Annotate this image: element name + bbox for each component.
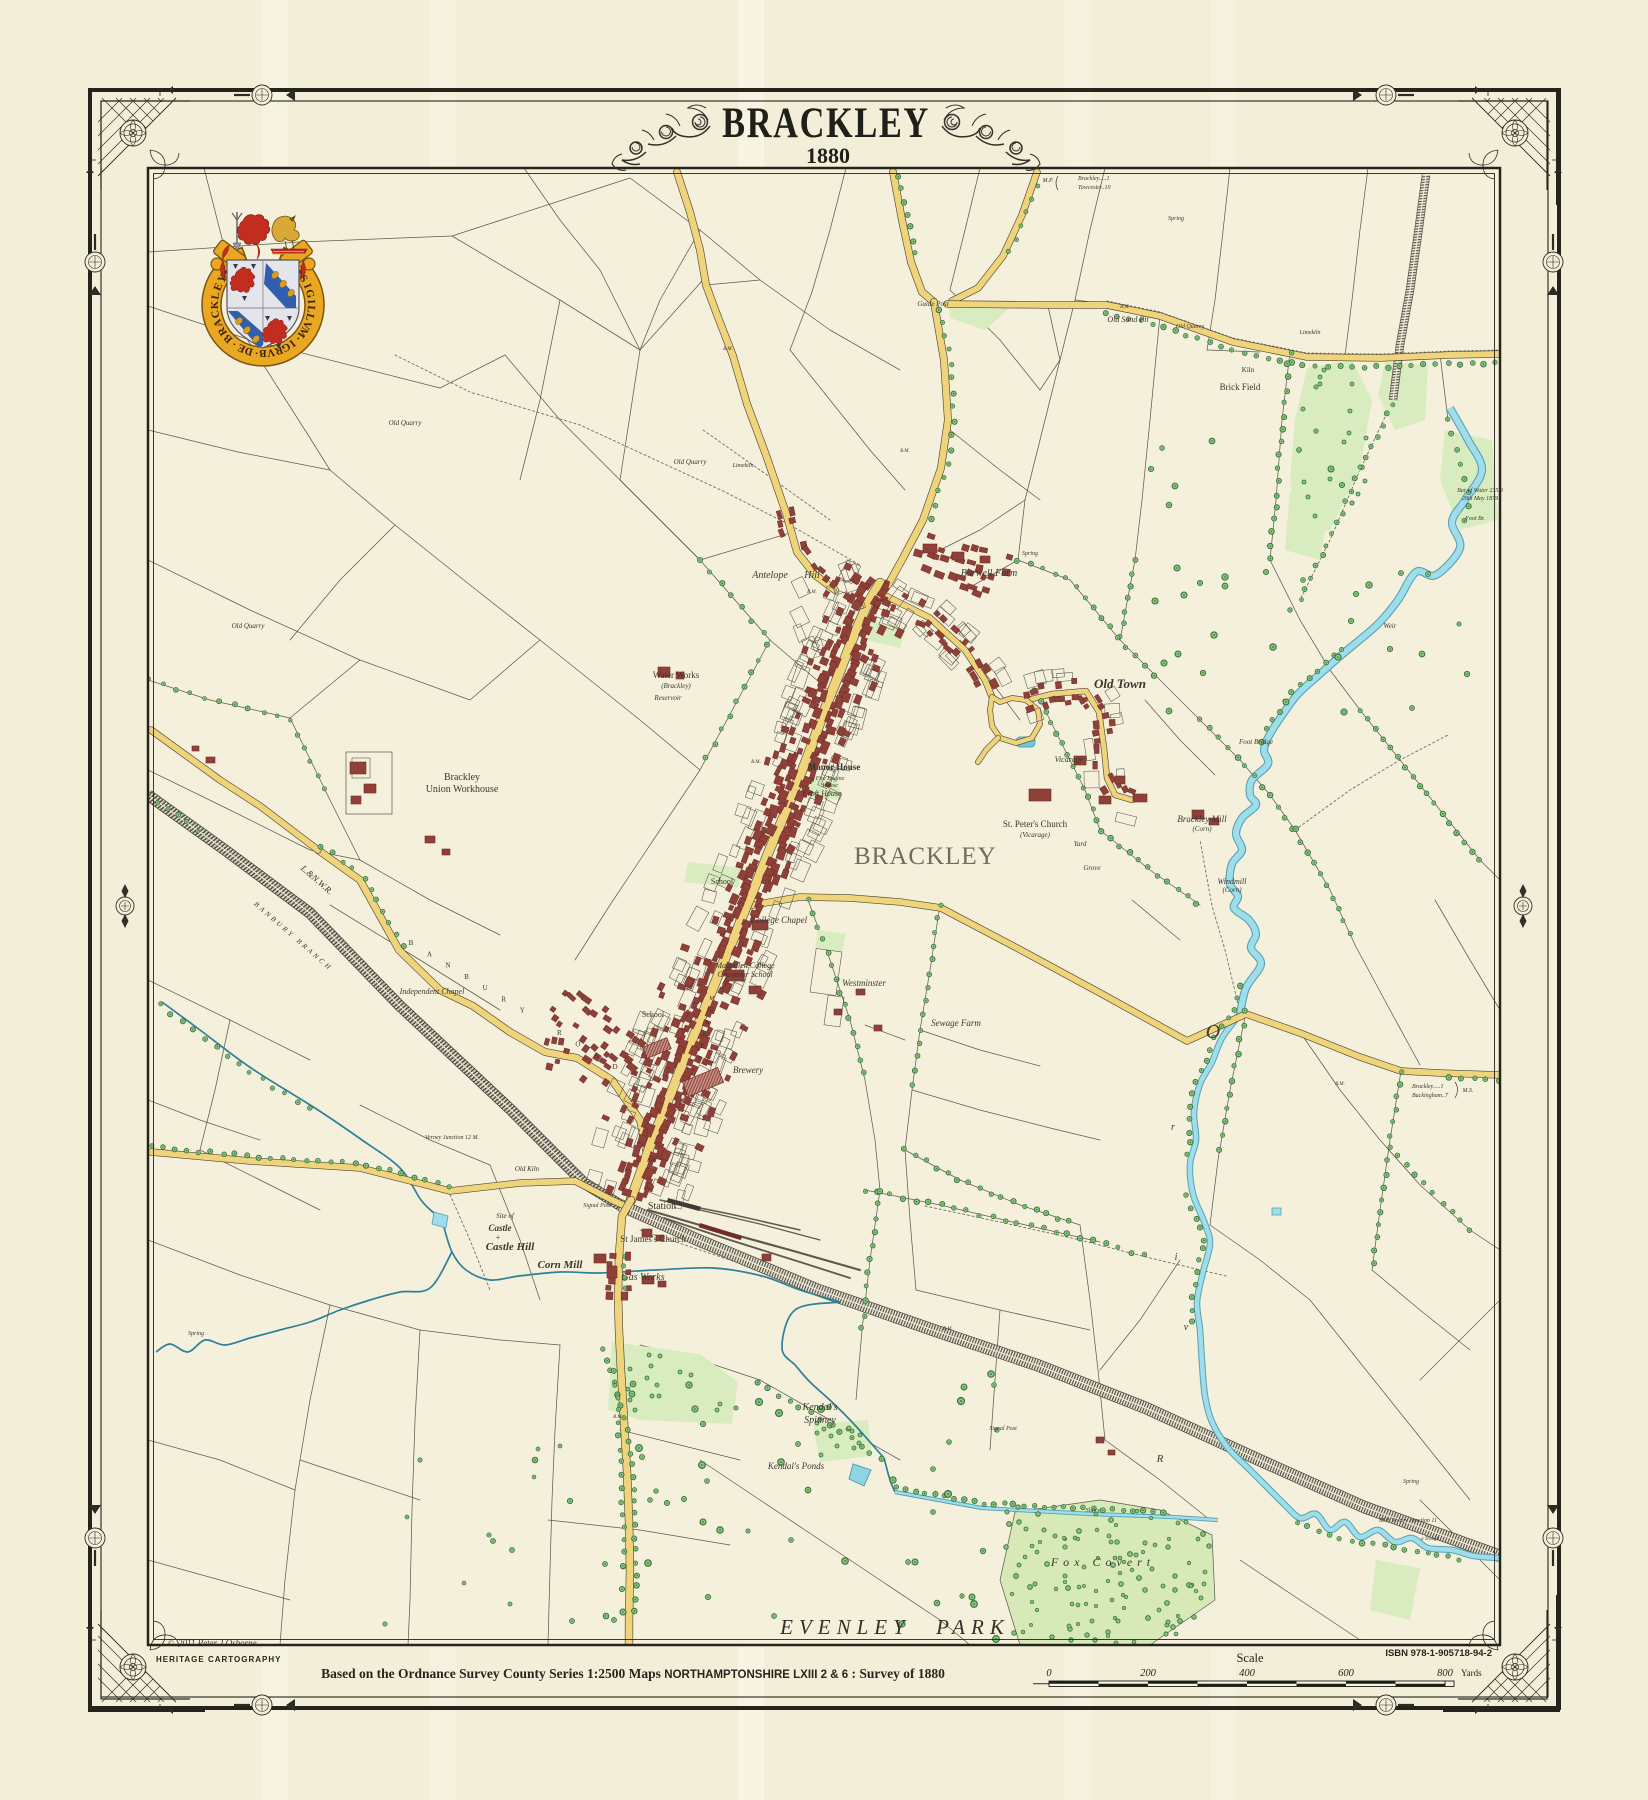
svg-text:L: L [304,305,317,313]
svg-text:A: A [427,950,432,958]
svg-text:r: r [1171,1122,1175,1133]
svg-text:©: © [168,1639,174,1648]
svg-text:Y: Y [520,1007,525,1015]
svg-text:Croft House: Croft House [802,789,841,798]
svg-text:28th May 1879: 28th May 1879 [1462,496,1498,502]
svg-text:0: 0 [1046,1668,1052,1679]
svg-text:Signal Post: Signal Post [583,1203,611,1209]
svg-text:Hill: Hill [803,570,820,581]
svg-text:Reservoir: Reservoir [653,694,681,702]
svg-text:(Vicarage): (Vicarage) [1020,831,1050,839]
svg-text:Independent Chapel: Independent Chapel [399,987,465,996]
svg-text:Yards: Yards [1461,1668,1482,1678]
svg-text:R: R [705,1020,709,1026]
svg-text:Verney Junction 12 M.: Verney Junction 12 M. [425,1135,479,1141]
svg-text:Yard: Yard [1074,840,1087,848]
svg-text:B.M.: B.M. [943,1327,953,1332]
svg-text:B.M.: B.M. [900,449,910,454]
svg-text:Sewage Farm: Sewage Farm [931,1018,981,1028]
svg-text:(Corn): (Corn) [1222,886,1242,894]
svg-text:B: B [409,939,414,947]
svg-text:I: I [305,299,317,304]
svg-text:Fox Covert: Fox Covert [1050,1555,1155,1569]
svg-text:Gas Works: Gas Works [621,1272,664,1283]
svg-text:Sluice: Sluice [1086,1508,1101,1514]
svg-text:400: 400 [1239,1668,1256,1679]
svg-text:Foot Br.: Foot Br. [1464,516,1485,522]
svg-text:O: O [575,1040,580,1048]
svg-text:Brick Field: Brick Field [1220,382,1261,392]
svg-text:A: A [707,1008,712,1014]
svg-text:Limekiln: Limekiln [1299,330,1321,336]
svg-text:Signal Post: Signal Post [989,1426,1017,1432]
svg-text:Spring: Spring [1403,1479,1419,1485]
svg-text:i: i [1175,1252,1178,1263]
svg-text:B.M.: B.M. [647,1159,657,1164]
svg-text:Grammar School: Grammar School [717,970,773,979]
svg-text:M: M [709,996,715,1002]
svg-text:Brackley Mill: Brackley Mill [1177,814,1227,824]
svg-text:a Trough: a Trough [1421,1537,1440,1542]
svg-text:St James's Church: St James's Church [620,1234,686,1244]
svg-text:200: 200 [1140,1668,1157,1679]
svg-text:Scale: Scale [1236,1651,1264,1665]
svg-text:B.M.: B.M. [1335,1082,1345,1087]
svg-text:N: N [446,962,451,970]
svg-text:Old Sand Pit: Old Sand Pit [1107,315,1149,324]
svg-text:B.M.: B.M. [807,590,817,595]
svg-text:800: 800 [1437,1668,1454,1679]
svg-text:Grove: Grove [1083,864,1100,872]
svg-text:Old Town: Old Town [1094,676,1146,691]
svg-text:College Chapel: College Chapel [751,915,808,925]
svg-text:Spring: Spring [188,1331,204,1337]
svg-text:K: K [209,300,221,309]
svg-text:Limekiln: Limekiln [732,463,754,469]
svg-text:T: T [698,1056,702,1062]
svg-text:Old Quarry: Old Quarry [674,458,708,466]
svg-text:Manor House: Manor House [808,762,861,772]
svg-text:U: U [483,984,488,992]
svg-text:B.M.: B.M. [613,1415,623,1420]
svg-text:B.M.: B.M. [751,760,761,765]
svg-text:Based on the Ordnance Survey C: Based on the Ordnance Survey County Seri… [321,1666,945,1681]
svg-text:Castle: Castle [488,1223,511,1233]
svg-text:Brackley: Brackley [444,772,480,783]
svg-text:E: E [701,1044,705,1050]
svg-text:600: 600 [1338,1668,1355,1679]
svg-text:Water Works: Water Works [653,670,700,680]
svg-text:Site of: Site of [496,1212,515,1220]
svg-text:B.M.: B.M. [723,347,733,352]
svg-text:Union Workhouse: Union Workhouse [426,784,499,795]
svg-text:Brewery: Brewery [733,1065,763,1075]
svg-text:Spring: Spring [1168,216,1184,222]
svg-text:Guide Post: Guide Post [917,300,949,308]
svg-text:D: D [612,1063,617,1071]
svg-text:Kendal's: Kendal's [802,1402,838,1413]
svg-text:B.M.: B.M. [1120,305,1130,310]
svg-text:B: B [464,973,469,981]
svg-text:Brackley.....1: Brackley.....1 [1412,1084,1444,1090]
svg-text:1880: 1880 [806,143,850,168]
svg-text:v: v [1184,1322,1189,1333]
svg-text:Kendal's Ponds: Kendal's Ponds [767,1461,825,1471]
svg-text:Magdalen College: Magdalen College [714,961,775,970]
svg-text:A: A [594,1052,599,1060]
svg-text:Antelope: Antelope [751,570,788,581]
svg-text:Fire Engine: Fire Engine [815,776,845,782]
svg-text:M.S.: M.S. [1462,1088,1474,1094]
svg-text:BRACKLEY: BRACKLEY [722,99,930,146]
svg-text:Burwell Farm: Burwell Farm [961,568,1017,579]
svg-text:M.P. Verney Junction 11: M.P. Verney Junction 11 [1378,1518,1437,1524]
svg-text:Spinney: Spinney [804,1415,836,1426]
svg-text:Old Quarry: Old Quarry [389,419,423,427]
svg-text:ISBN 978-1-905718-94-2: ISBN 978-1-905718-94-2 [1385,1648,1492,1659]
svg-text:Windmill: Windmill [1218,877,1248,886]
svg-text:Towcester..10: Towcester..10 [1078,185,1110,191]
svg-text:School: School [642,1010,665,1019]
svg-text:Weir: Weir [1384,622,1397,630]
svg-text:St. Peter's Church: St. Peter's Church [1003,819,1068,829]
svg-text:(Brackley): (Brackley) [661,682,691,690]
svg-text:HERITAGE CARTOGRAPHY: HERITAGE CARTOGRAPHY [156,1655,282,1664]
svg-text:(Corn): (Corn) [1192,825,1212,833]
svg-text:Old Quarry: Old Quarry [232,622,266,630]
svg-text:Old Quarry: Old Quarry [1176,324,1205,330]
svg-text:Station: Station [648,1201,676,1212]
svg-text:EVENLEY PARK: EVENLEY PARK [779,1615,1010,1639]
svg-text:O: O [1206,1021,1220,1043]
svg-text:Kiln: Kiln [1242,366,1255,374]
svg-text:M.P.: M.P. [1042,178,1054,184]
svg-text:Old Kiln: Old Kiln [515,1165,540,1173]
svg-text:BRACKLEY: BRACKLEY [854,843,997,870]
svg-text:Castle Hill: Castle Hill [486,1241,536,1253]
svg-text:School: School [711,877,734,886]
svg-text:R: R [501,995,506,1003]
svg-text:Buckingham..7: Buckingham..7 [1412,1093,1449,1099]
svg-text:Westminster: Westminster [842,978,886,988]
svg-text:R: R [557,1029,562,1037]
svg-text:Vicarage: Vicarage [1055,755,1084,764]
svg-text:K: K [703,1032,708,1038]
svg-text:B: B [259,347,267,359]
svg-text:Spring: Spring [1022,551,1038,557]
svg-text:Bar of Water 235.9: Bar of Water 235.9 [1457,487,1503,494]
svg-text:R: R [1156,1453,1164,1465]
svg-text:Brackley.....1: Brackley.....1 [1078,176,1110,182]
svg-text:Corn Mill: Corn Mill [538,1259,584,1271]
svg-text:Foot Bridge: Foot Bridge [1238,738,1273,746]
